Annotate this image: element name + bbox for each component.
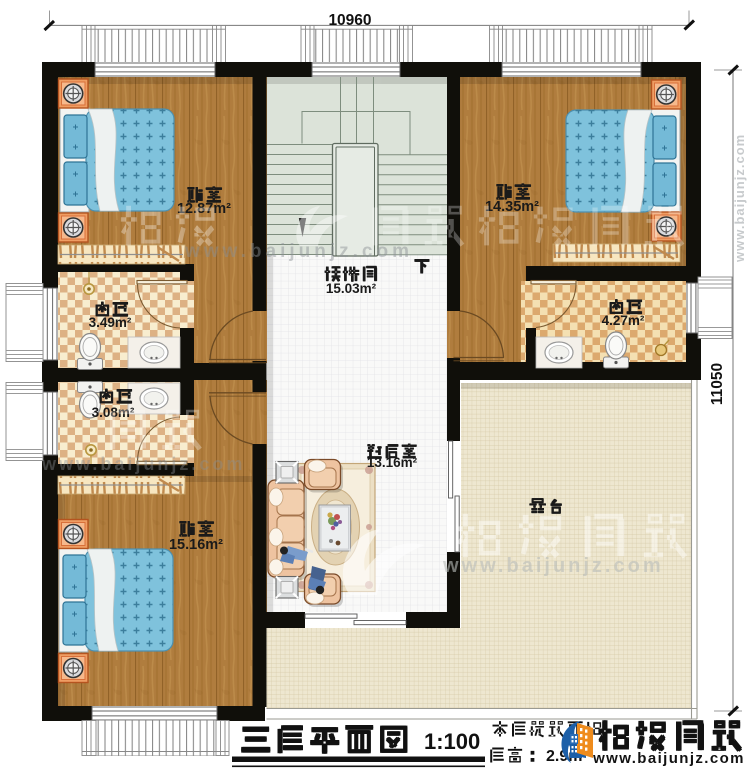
svg-text:www.baijunjz.com: www.baijunjz.com [592,750,745,767]
svg-text:www.baijunjz.com: www.baijunjz.com [41,454,245,474]
svg-text:15.16m²: 15.16m² [169,537,223,553]
svg-text:www.baijunjz.com: www.baijunjz.com [442,555,664,577]
svg-text:13.16m²: 13.16m² [367,455,418,470]
svg-text:www.baijunjz.com: www.baijunjz.com [732,134,747,263]
svg-text:3.49m²: 3.49m² [89,315,132,330]
svg-text:4.27m²: 4.27m² [602,313,645,328]
svg-text:www.baijunjz.com: www.baijunjz.com [184,241,413,262]
svg-text:11050: 11050 [709,363,726,405]
svg-text:15.03m²: 15.03m² [326,281,377,296]
svg-text:1:100: 1:100 [424,729,480,754]
